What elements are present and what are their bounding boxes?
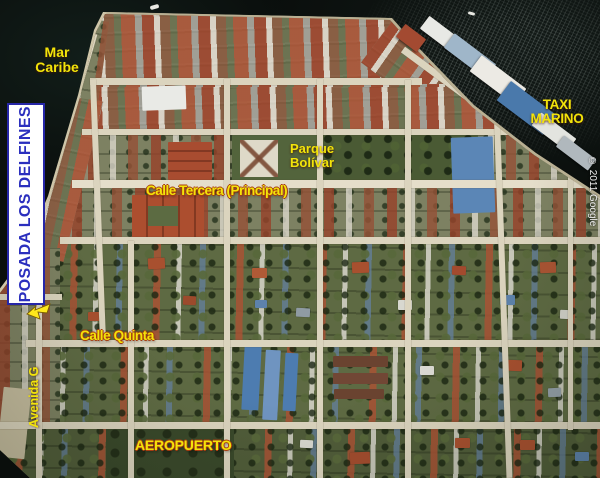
blue-warehouse <box>451 136 496 213</box>
large-red-building <box>168 142 212 180</box>
street-vertical <box>128 241 134 478</box>
barracks-building <box>333 373 388 384</box>
taxi-label-line2: MARINO <box>512 112 600 126</box>
barracks-building <box>334 389 384 399</box>
house-roof <box>420 366 434 375</box>
hotel-banner-text: POSADA LOS DELFINES <box>17 106 35 302</box>
large-white-roof <box>142 85 187 111</box>
residential-block <box>22 345 600 424</box>
google-credit: © 2011 Google <box>583 156 598 248</box>
house-roof <box>455 438 470 448</box>
school-building <box>132 195 204 239</box>
house-roof <box>540 262 556 274</box>
hotel-location-marker-icon <box>26 301 54 323</box>
house-roof <box>575 452 589 461</box>
calle-tercera-label: Calle Tercera (Principal) <box>146 184 287 198</box>
taxi-label-line1: TAXI <box>512 98 600 112</box>
house-roof <box>548 388 561 397</box>
house-roof <box>148 258 166 270</box>
house-roof <box>183 296 196 305</box>
street-horizontal <box>90 78 422 85</box>
aeropuerto-label: AEROPUERTO <box>135 438 232 453</box>
street-horizontal <box>60 237 600 244</box>
calle-quinta-label: Calle Quinta <box>80 329 154 343</box>
house-roof <box>255 300 267 308</box>
house-roof <box>300 440 313 448</box>
residential-block <box>55 243 600 341</box>
taxi-marino-label: TAXI MARINO <box>512 98 600 127</box>
avenida-g-label: Avenida G <box>28 350 44 428</box>
house-roof <box>252 268 267 278</box>
sea-label-line1: Mar <box>16 45 98 60</box>
hotel-banner: POSADA LOS DELFINES <box>7 103 45 305</box>
street-vertical <box>405 80 411 478</box>
sea-label-line2: Caribe <box>16 60 98 75</box>
street-vertical <box>568 176 573 430</box>
house-roof <box>520 440 535 450</box>
park-label-line1: Parque <box>290 142 334 156</box>
courtyard <box>148 206 178 226</box>
park-label-line2: Bolívar <box>290 156 334 170</box>
house-roof <box>296 308 310 318</box>
barracks-building <box>333 356 388 367</box>
sea-label: Mar Caribe <box>16 45 98 75</box>
blue-warehouse <box>241 346 261 411</box>
satellite-map: Mar Caribe POSADA LOS DELFINES TAXI MARI… <box>0 0 600 478</box>
house-roof <box>350 452 370 465</box>
house-roof <box>452 266 466 275</box>
street-vertical <box>224 79 230 478</box>
house-roof <box>352 262 369 274</box>
street-vertical <box>317 79 323 478</box>
park-label: Parque Bolívar <box>290 142 334 170</box>
park-plaza-paths <box>240 140 278 177</box>
